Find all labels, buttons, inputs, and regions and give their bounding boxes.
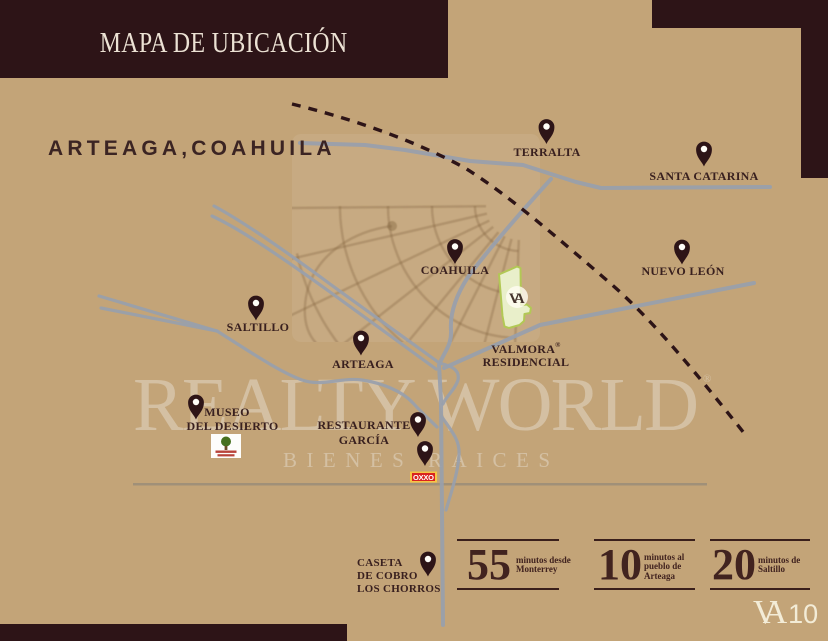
svg-text:®: ® bbox=[703, 373, 711, 385]
svg-text:OXXO: OXXO bbox=[413, 473, 434, 482]
svg-text:VA: VA bbox=[509, 291, 525, 307]
